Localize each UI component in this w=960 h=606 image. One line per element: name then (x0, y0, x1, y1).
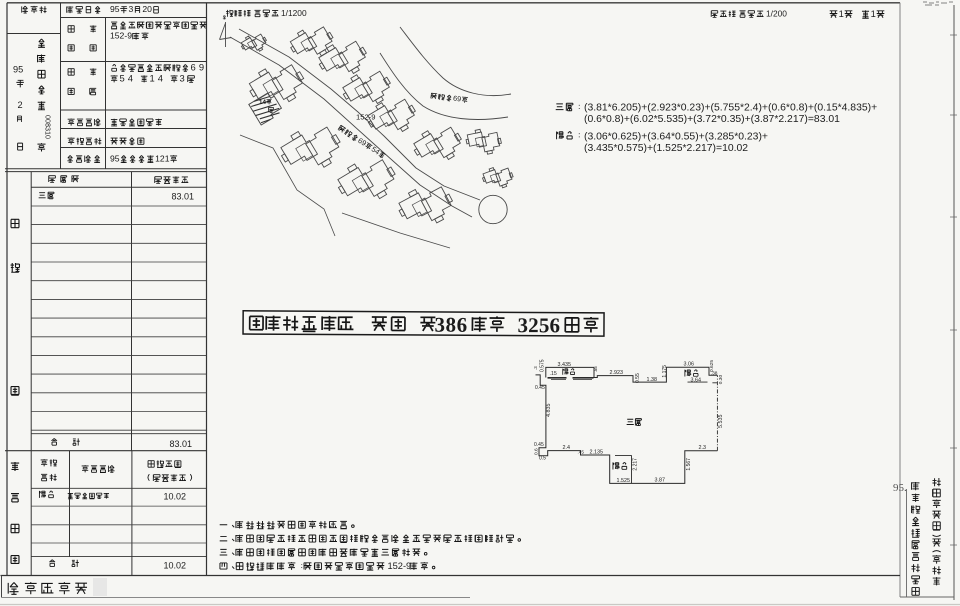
svg-text:69: 69 (191, 62, 208, 73)
svg-text:0.55: 0.55 (635, 373, 641, 383)
svg-text:(3.06*0.625)+(3.64*0.55)+(3.28: (3.06*0.625)+(3.64*0.55)+(3.285*0.23)+ (584, 132, 768, 143)
svg-text:152-9: 152-9 (356, 113, 375, 122)
svg-text:3: 3 (129, 4, 134, 14)
svg-text:1.567: 1.567 (686, 458, 692, 471)
svg-text:2.923: 2.923 (610, 370, 624, 376)
svg-text:95: 95 (13, 65, 23, 75)
svg-text:14: 14 (259, 99, 266, 106)
svg-text:2.217: 2.217 (633, 458, 639, 471)
svg-text:1: 1 (871, 8, 876, 19)
svg-text:95: 95 (110, 4, 120, 14)
svg-text:95: 95 (110, 153, 120, 163)
svg-text:.55: .55 (593, 366, 598, 373)
svg-text:5.535: 5.535 (718, 415, 724, 429)
svg-text:2.3: 2.3 (699, 445, 707, 451)
svg-text:152-9: 152-9 (110, 31, 132, 41)
svg-text:0.625: 0.625 (709, 360, 715, 372)
svg-text:(3.81*6.205)+(2.923*0.23)+(5.7: (3.81*6.205)+(2.923*0.23)+(5.755*2.4)+(0… (584, 103, 877, 114)
svg-text:1.175: 1.175 (662, 365, 668, 378)
svg-text:20: 20 (142, 4, 152, 14)
svg-text:1.525: 1.525 (617, 478, 631, 484)
svg-text:.15: .15 (550, 371, 557, 377)
svg-text:10.02: 10.02 (163, 561, 186, 571)
svg-text:0.6: 0.6 (533, 448, 539, 455)
svg-text:2: 2 (18, 100, 23, 110)
svg-text:3: 3 (180, 73, 185, 84)
svg-text:3.435: 3.435 (558, 362, 572, 368)
svg-text:69: 69 (453, 94, 462, 104)
svg-text:3.64: 3.64 (691, 377, 702, 383)
svg-text:83.01: 83.01 (171, 192, 194, 202)
svg-text:4.835: 4.835 (546, 404, 552, 418)
svg-text:14: 14 (150, 73, 166, 84)
svg-text:386: 386 (434, 313, 467, 337)
svg-text:.3: .3 (533, 366, 538, 370)
svg-text:(3.435*0.575)+(1.525*2.217)=10: (3.435*0.575)+(1.525*2.217)=10.02 (584, 143, 748, 154)
svg-text:3256: 3256 (517, 313, 560, 337)
svg-text:1: 1 (839, 8, 844, 19)
svg-text:0.5: 0.5 (539, 455, 546, 461)
svg-text:1/200: 1/200 (766, 8, 787, 18)
svg-text:1.38: 1.38 (647, 377, 658, 383)
svg-text:152-9: 152-9 (387, 561, 411, 571)
svg-text:(0.6*0.8)+(6.02*5.535)+(3.72*0: (0.6*0.8)+(6.02*5.535)+(3.72*0.35)+(3.87… (584, 114, 840, 125)
svg-text:83.01: 83.01 (169, 439, 192, 449)
svg-text:0.45: 0.45 (534, 442, 544, 448)
svg-text:008310: 008310 (44, 115, 53, 139)
svg-text:3.06: 3.06 (684, 362, 695, 368)
svg-text:2.4: 2.4 (563, 445, 571, 451)
svg-text:0.575: 0.575 (540, 359, 546, 372)
svg-text:.45: .45 (578, 449, 585, 454)
svg-text:10.02: 10.02 (163, 491, 186, 501)
svg-text:0.30: 0.30 (718, 375, 724, 385)
svg-text:3.87: 3.87 (655, 478, 666, 484)
svg-text:0.45: 0.45 (535, 385, 545, 391)
svg-text:121: 121 (155, 153, 170, 163)
svg-text:95.: 95. (893, 482, 907, 494)
svg-text:1/1200: 1/1200 (281, 8, 307, 18)
svg-text:2.135: 2.135 (590, 450, 604, 456)
svg-text:54: 54 (120, 73, 136, 84)
